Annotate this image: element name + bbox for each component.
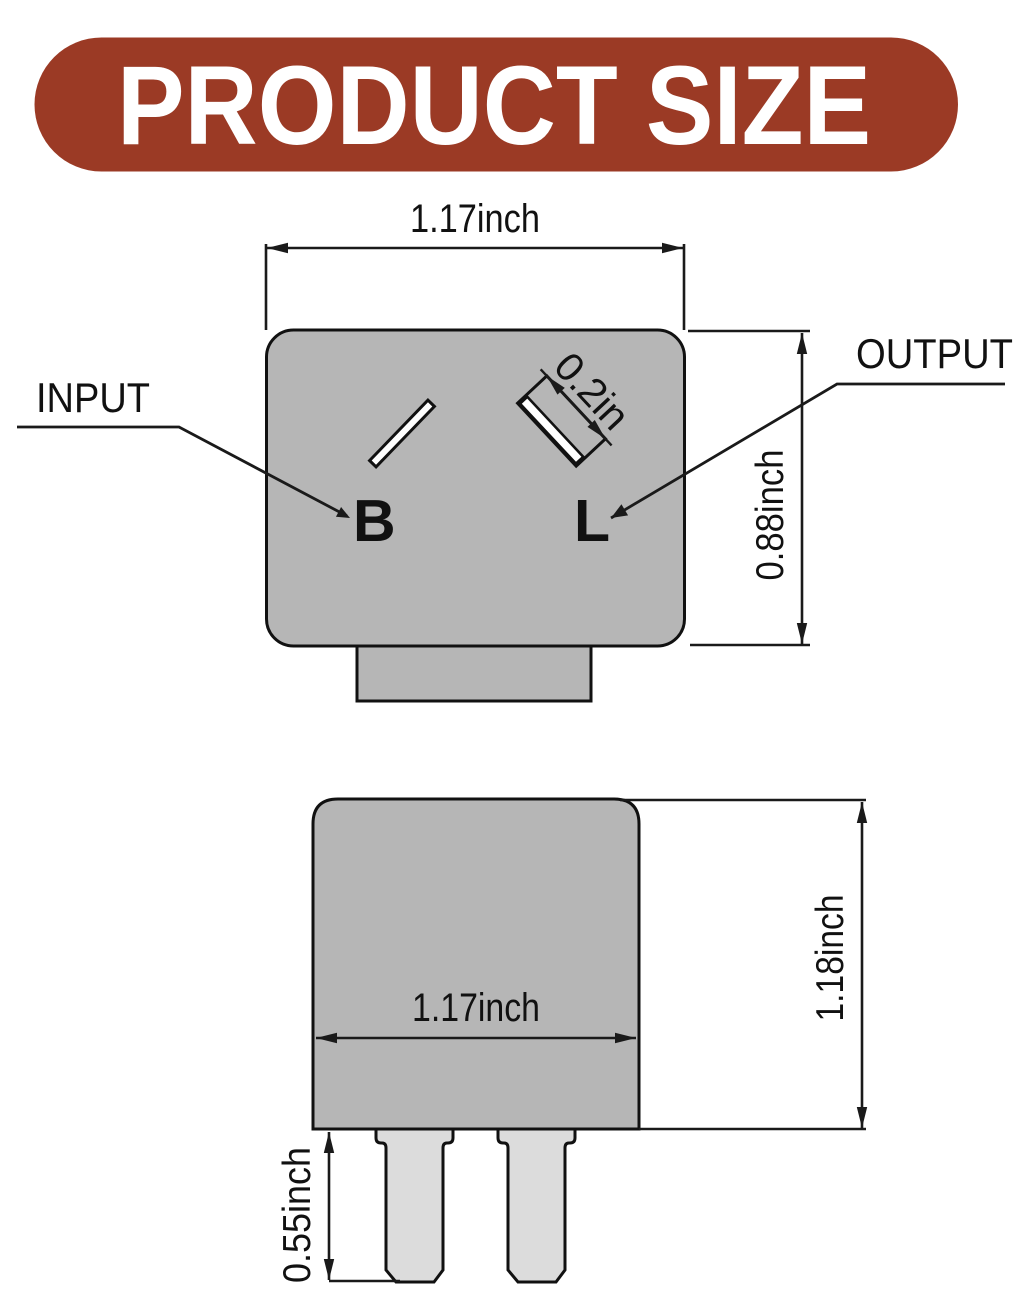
svg-text:L: L xyxy=(574,488,610,554)
svg-text:OUTPUT: OUTPUT xyxy=(856,330,1013,377)
svg-text:1.17inch: 1.17inch xyxy=(412,986,540,1030)
svg-text:1.18inch: 1.18inch xyxy=(809,895,852,1022)
svg-text:0.88inch: 0.88inch xyxy=(749,450,792,581)
svg-text:INPUT: INPUT xyxy=(36,374,150,421)
svg-text:B: B xyxy=(353,488,396,554)
svg-text:0.55inch: 0.55inch xyxy=(276,1147,319,1283)
svg-text:PRODUCT SIZE: PRODUCT SIZE xyxy=(117,43,871,168)
svg-text:1.17inch: 1.17inch xyxy=(410,197,540,241)
